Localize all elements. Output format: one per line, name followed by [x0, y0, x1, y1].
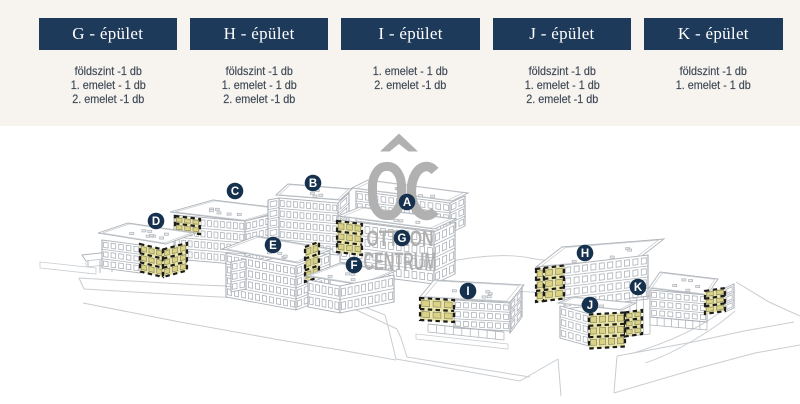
svg-text:H: H [581, 248, 589, 260]
svg-text:E: E [269, 240, 277, 252]
svg-text:C: C [231, 186, 239, 198]
svg-text:B: B [309, 178, 317, 190]
svg-text:F: F [350, 260, 357, 272]
svg-text:J: J [587, 300, 593, 312]
svg-text:K: K [634, 282, 643, 294]
svg-text:I: I [466, 286, 469, 298]
svg-text:CENTRUM: CENTRUM [364, 248, 437, 276]
svg-text:D: D [152, 216, 160, 228]
svg-text:A: A [403, 197, 411, 209]
svg-text:G: G [398, 233, 407, 245]
